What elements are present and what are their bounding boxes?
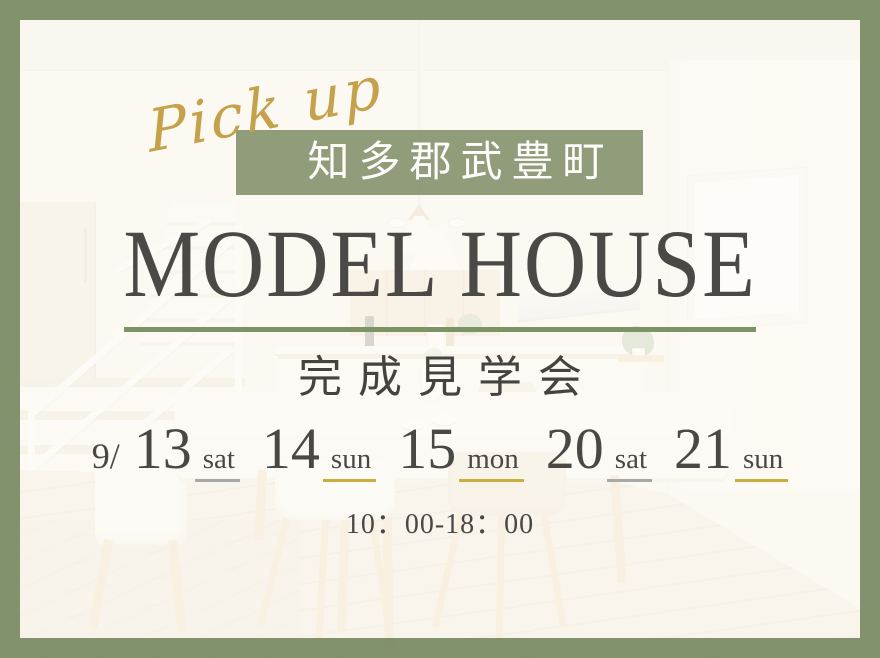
month-prefix: 9/ (92, 435, 120, 477)
main-title: MODEL HOUSE (44, 216, 836, 312)
date-weekday: sun (735, 443, 788, 482)
date-row: 9/ 13 sat 14 sun 15 mon 20 sat 21 sun (0, 420, 880, 482)
date-weekday: sun (323, 443, 376, 482)
date-weekday: mon (459, 443, 524, 482)
location-label: 知多郡武豊町 (307, 142, 613, 184)
date-item: 14 sun (262, 420, 376, 482)
divider-line (124, 327, 756, 332)
date-number: 20 (546, 420, 604, 478)
date-number: 21 (674, 420, 732, 478)
poster-content: 知多郡武豊町 Pick up MODEL HOUSE 完成見学会 9/ 13 s… (0, 0, 880, 658)
date-item: 13 sat (134, 420, 240, 482)
date-weekday: sat (607, 443, 652, 482)
event-title: 完成見学会 (0, 356, 880, 400)
date-number: 14 (262, 420, 320, 478)
date-number: 15 (398, 420, 456, 478)
location-badge: 知多郡武豊町 (236, 130, 643, 195)
poster: 知多郡武豊町 Pick up MODEL HOUSE 完成見学会 9/ 13 s… (0, 0, 880, 658)
date-item: 15 mon (398, 420, 524, 482)
date-item: 21 sun (674, 420, 788, 482)
date-number: 13 (134, 420, 192, 478)
opening-hours: 10：00-18：00 (0, 502, 880, 542)
date-item: 20 sat (546, 420, 652, 482)
date-weekday: sat (195, 443, 240, 482)
